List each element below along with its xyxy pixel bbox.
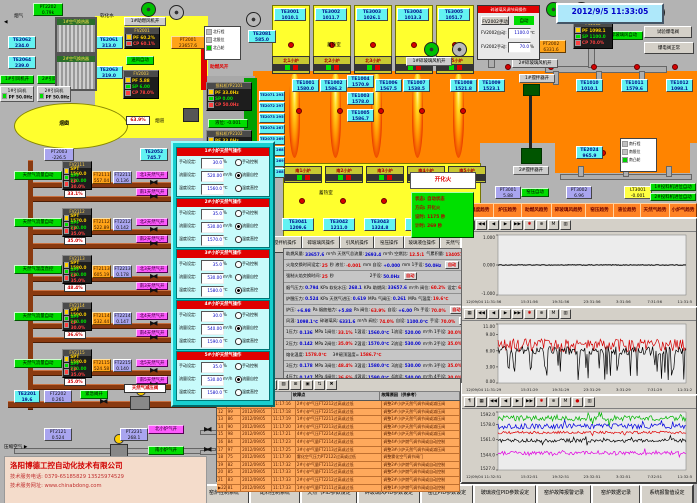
svg-text:15:31:29: 15:31:29 bbox=[521, 387, 539, 392]
thermo-dot bbox=[340, 198, 346, 204]
fv2002-manual-label: FV2002手动: bbox=[481, 44, 507, 50]
param-row: 熔化温度:1578.0℃ 3#碹顶温度=1586.7℃ bbox=[284, 350, 461, 361]
gas-valve-icon[interactable]: ▶◀ bbox=[150, 367, 155, 374]
instrument-TE1006: TE10061567.5 bbox=[375, 79, 402, 92]
mode-radio[interactable] bbox=[235, 172, 242, 179]
fan-icon bbox=[424, 42, 439, 57]
chart-toolbar-icon[interactable]: M bbox=[548, 220, 559, 230]
mode-radio[interactable] bbox=[235, 159, 242, 166]
mode-radio[interactable] bbox=[235, 312, 242, 319]
bubbler-dot bbox=[419, 108, 425, 114]
svg-text:3:31:29: 3:31:29 bbox=[616, 387, 631, 392]
setpoint-field[interactable]: 30.0 bbox=[201, 158, 224, 169]
fv2002-mode-indicator: 自动 bbox=[514, 16, 534, 25]
instrument-TE2063: TE2063319.0 bbox=[95, 66, 123, 79]
svg-text:15:32:51: 15:32:51 bbox=[521, 474, 539, 479]
field-label: 温度设定: bbox=[179, 287, 196, 293]
svg-text:0.000: 0.000 bbox=[483, 263, 495, 268]
chamber-temp-TE3002: TE30021011.7 bbox=[315, 8, 347, 21]
gas-mode-label: 天然气温度直控 bbox=[14, 265, 62, 274]
flow-transmitter: FT2112522.89 bbox=[92, 218, 111, 231]
setpoint-field[interactable]: 35.0 bbox=[201, 362, 224, 373]
gas-valve-icon[interactable]: ▶◀ bbox=[150, 179, 155, 186]
gas-valve-icon[interactable]: ▶◀ bbox=[150, 193, 155, 200]
mode-radio[interactable] bbox=[235, 185, 242, 192]
fan-icon bbox=[246, 12, 261, 27]
svg-text:7:31:56: 7:31:56 bbox=[647, 299, 662, 304]
svg-text:1527.0: 1527.0 bbox=[480, 466, 495, 471]
gas-valve-icon[interactable]: ▶◀ bbox=[150, 287, 155, 294]
chart-toolbar-icon[interactable]: ▦ bbox=[476, 397, 487, 407]
south-port-3: 南3小炉 bbox=[366, 166, 404, 183]
trend-chart-窑压趋势: ▦◀◀◀▶▶▶✱⊕M▥11.009.006.003.000.0012/09/04… bbox=[460, 306, 697, 397]
stirrer-motor-icon bbox=[523, 84, 540, 96]
instrument-PT2003: PT2003-226.5 bbox=[44, 148, 74, 161]
instrument-TE1009: TE10091523.1 bbox=[478, 79, 505, 92]
label-蓄热室: 蓄热室 bbox=[327, 42, 351, 48]
bubbler-dot bbox=[337, 108, 343, 114]
mode-radio[interactable] bbox=[235, 236, 242, 243]
chart-toolbar-icon[interactable]: ▶ bbox=[500, 220, 511, 230]
chamber-temp-TE3001: TE30011010.1 bbox=[274, 8, 306, 21]
label-爆电阀正常[interactable]: 爆电阀正常 bbox=[644, 42, 694, 54]
chart-toolbar-icon[interactable]: ◀◀ bbox=[488, 397, 499, 407]
unit-label: ℃ bbox=[223, 185, 228, 190]
mode-radio-label: 流量自控 bbox=[242, 172, 258, 178]
field-label: 流量设定: bbox=[179, 274, 196, 280]
trend-chart-窑温度趋势: ¶▦◀◀◀▶▶▶✱⊕M●▥1592.01578.01561.01544.0152… bbox=[460, 394, 697, 484]
chart-toolbar-icon[interactable]: ✱ bbox=[524, 220, 535, 230]
chart-toolbar-icon[interactable]: ▦ bbox=[464, 309, 475, 319]
chart-toolbar-icon[interactable]: ⊕ bbox=[536, 220, 547, 230]
chart-toolbar-icon[interactable]: ▶▶ bbox=[512, 220, 523, 230]
label-北小炉气开: 北小炉气开 bbox=[148, 425, 184, 434]
chart-toolbar-icon[interactable]: ✱ bbox=[524, 309, 535, 319]
gas-mode-label: 天然气流量自动 bbox=[14, 171, 62, 180]
instrument-TE1010: TE10101010.1 bbox=[576, 79, 603, 92]
chamber-temp-TE3043: TE30431324.8 bbox=[364, 218, 396, 231]
alarm-toolbar-icon[interactable]: ▣ bbox=[302, 380, 313, 390]
chamber-temp-TE3041: TE30411209.6 bbox=[282, 218, 314, 231]
mode-radio-label: 温度直控 bbox=[242, 287, 258, 293]
setpoint-field[interactable]: 1580.0 bbox=[201, 286, 224, 297]
thermo-dot bbox=[411, 42, 417, 48]
mode-radio[interactable] bbox=[235, 210, 242, 217]
unit-label: % bbox=[223, 261, 227, 266]
south-air-valve-icon[interactable]: ▶◀ bbox=[204, 446, 209, 453]
south-reversal-legend: 南行程南限位南凸轮 bbox=[620, 138, 657, 172]
instrument-TE2024: TE2024965.9 bbox=[576, 146, 603, 159]
instrument-PT2002: PT20026331.6 bbox=[536, 40, 566, 53]
param-row: 强制火焰交换时间:25秒 2手设:50.0Hz自动 bbox=[284, 271, 461, 282]
label-液位0001: 液位: -0.001 bbox=[208, 119, 248, 128]
setpoint-field[interactable]: 530.00 bbox=[201, 375, 224, 386]
instrument-TE1012: TE10121098.1 bbox=[666, 79, 693, 92]
bubbler-dot bbox=[460, 108, 466, 114]
bubbler-dot bbox=[505, 64, 511, 70]
label-窑压自动: 窑压自动 bbox=[521, 188, 549, 197]
panel-title: 1#小炉天然气操作 bbox=[177, 148, 269, 156]
mode-radio[interactable] bbox=[235, 338, 242, 345]
chart-toolbar-icon[interactable]: ✱ bbox=[536, 397, 547, 407]
vendor-phone: 技术服务电话: 0379-65185829 13525974529 bbox=[10, 473, 206, 480]
air-heat-exchanger: 1#空气换热器 bbox=[55, 17, 97, 54]
label-1#投料机进位自动: 1#投料机进位自动 bbox=[650, 183, 696, 191]
mode-radio[interactable] bbox=[235, 261, 242, 268]
bottom-button-窑炉故障报警记录[interactable]: 窑炉故障报警记录 bbox=[536, 484, 592, 503]
label-软化水: 软化水 bbox=[100, 13, 126, 19]
mode-radio[interactable] bbox=[235, 376, 242, 383]
label-送风自动: 送风自动 bbox=[126, 56, 154, 65]
svg-text:12/09/04 11:31:56: 12/09/04 11:31:56 bbox=[466, 299, 502, 304]
valve-position-value: 33.1% bbox=[64, 190, 86, 198]
burner-gas-panel-4: 4#小炉天然气操作手动设定:30.0%手动控制流量设定:540.00m³/h流量… bbox=[176, 300, 270, 350]
chart-plot: 1.0000.000-1.00012/09/04 11:31:5615:31:5… bbox=[462, 232, 692, 306]
gas-valve-controller-FV2115: FV2115SPT 1580.0SPF 530.00CP 35.0% bbox=[62, 349, 92, 378]
param-row: 2压力:0.142MPa 2阀位:35.0%2温设:1570.0℃2流设:530… bbox=[284, 339, 461, 350]
pressure-transmitter: FT22150.140 bbox=[113, 359, 132, 372]
chart-toolbar-icon[interactable]: ▶▶ bbox=[512, 309, 523, 319]
burner-gas-panel-1: 1#小炉天然气操作手动设定:30.0%手动控制流量设定:520.00m³/h流量… bbox=[176, 147, 270, 197]
alarm-row[interactable]: 16842012/09/0511:17:234#小炉气量FT2114过高或过低调… bbox=[217, 439, 460, 447]
gas-valve-icon[interactable]: ▶◀ bbox=[150, 334, 155, 341]
alarm-row[interactable]: 20852012/09/0511:17:335#小炉气量FT2115过高或过低调… bbox=[217, 469, 460, 477]
setpoint-field[interactable]: 540.00 bbox=[201, 324, 224, 335]
label-: ◀ bbox=[4, 20, 12, 25]
chart-toolbar-icon[interactable]: ▶ bbox=[500, 309, 511, 319]
instrument-TE2062: TE2062234.0 bbox=[8, 36, 36, 49]
label-试验爆电阀[interactable]: 试验爆电阀 bbox=[644, 26, 692, 38]
chart-toolbar-icon[interactable]: ▥ bbox=[560, 309, 571, 319]
setpoint-field[interactable]: 520.00 bbox=[201, 171, 224, 182]
instrument-TE1008: TE10081521.8 bbox=[450, 79, 477, 92]
fv2002-manual-button[interactable]: FV2002手动 bbox=[481, 16, 509, 25]
chart-toolbar-icon[interactable]: ▥ bbox=[584, 397, 595, 407]
chart-toolbar-icon[interactable]: ▶ bbox=[512, 397, 523, 407]
label-助燃风开: 助燃风开 bbox=[210, 64, 236, 70]
fv2002-auto-unit: ℃ bbox=[530, 30, 535, 35]
instrument-FT2202: FT22020.261 bbox=[44, 390, 72, 403]
crushed-glass-fan-valve-dialog: 碎玻璃风调节阀操作 FV2002手动 自动 FV2002自动: 1100.0 ℃… bbox=[477, 5, 540, 60]
label-天然气减压阀: 天然气减压阀 bbox=[124, 384, 166, 393]
vendor-web: 技术服务网址: www.chinabdong.com bbox=[10, 482, 206, 489]
south-port-2: 南2小炉 bbox=[325, 166, 363, 183]
flow-transmitter: FT2111557.04 bbox=[92, 171, 111, 184]
setpoint-field[interactable]: 1570.0 bbox=[201, 235, 224, 246]
stack-damper-position: 63.9% bbox=[126, 116, 150, 125]
chart-toolbar-icon[interactable]: ¶ bbox=[464, 397, 475, 407]
svg-text:15:31:56: 15:31:56 bbox=[521, 299, 539, 304]
label-蓄热室: 蓄热室 bbox=[319, 190, 343, 196]
svg-text:12/09/04 11:32:51: 12/09/04 11:32:51 bbox=[466, 474, 502, 479]
chart-plot: 11.009.006.003.000.0012/09/04 11:31:2915… bbox=[462, 321, 692, 394]
param-row: 烟气压力:0.794KPa 软化水压:268.1KPa 助燃风:33657.6m… bbox=[284, 283, 461, 294]
alarm-toolbar-icon[interactable]: ▧ bbox=[278, 380, 289, 390]
mode-radio[interactable] bbox=[235, 325, 242, 332]
panel-title: 3#小炉天然气操作 bbox=[177, 250, 269, 258]
gas-mode-label: 天然气流量自动 bbox=[14, 359, 62, 368]
mode-radio-label: 温度直控 bbox=[242, 389, 258, 395]
chamber-temp-TE3042: TE30421211.0 bbox=[323, 218, 355, 231]
svg-text:11:31:56: 11:31:56 bbox=[677, 299, 692, 304]
instrument-PT2231: PT2231268.1 bbox=[120, 428, 148, 441]
instrument-TE2201: TE220119.6 bbox=[14, 390, 40, 403]
setpoint-field[interactable]: 35.0 bbox=[201, 260, 224, 271]
chart-toolbar-icon[interactable]: ▥ bbox=[560, 220, 571, 230]
alarm-row[interactable]: 13862012/09/0511:17:191#小炉气压FT2211过高或过低调… bbox=[217, 416, 460, 424]
panel-title: 2#小炉天然气操作 bbox=[177, 199, 269, 207]
chart-toolbar-icon[interactable]: ⊕ bbox=[536, 309, 547, 319]
svg-text:23:31:29: 23:31:29 bbox=[583, 387, 601, 392]
id-fan-unit: 2#引风机PF 50.0Hz bbox=[37, 86, 71, 102]
fan-icon bbox=[141, 2, 156, 17]
label-2#投料机进位自动: 2#投料机进位自动 bbox=[650, 193, 696, 201]
instrument-TE1002: TE10021586.2 bbox=[320, 79, 347, 92]
svg-text:1592.0: 1592.0 bbox=[480, 412, 495, 417]
svg-text:3:32:51: 3:32:51 bbox=[616, 474, 631, 479]
bubbler-dot bbox=[672, 64, 678, 70]
valve-position-value: 35.0% bbox=[64, 378, 86, 386]
burner-gas-panel-3: 3#小炉天然气操作手动设定:35.0%手动控制流量设定:530.00m³/h流量… bbox=[176, 249, 270, 299]
field-label: 温度设定: bbox=[179, 185, 196, 191]
field-label: 温度设定: bbox=[179, 338, 196, 344]
alarm-row[interactable]: 12992012/09/0511:17:185#小炉气压FT2215过高或过低调… bbox=[217, 409, 460, 417]
chart-toolbar-icon[interactable]: ◀ bbox=[500, 397, 511, 407]
instrument-PT3001: PT30015.88 bbox=[495, 186, 521, 199]
label-2#碎玻璃风机开: 2#碎玻璃风机开 bbox=[512, 59, 558, 68]
id-fan-unit: 1#引风机PF 50.0Hz bbox=[0, 86, 34, 102]
svg-text:19:31:29: 19:31:29 bbox=[552, 387, 570, 392]
instrument-TE1007: TE10071538.5 bbox=[403, 79, 430, 92]
gas-valve-icon[interactable]: ▶◀ bbox=[150, 240, 155, 247]
alarm-toolbar-icon[interactable]: ✖ bbox=[326, 380, 337, 390]
chamber-temp-TE3004: TE30041013.3 bbox=[397, 8, 429, 21]
alarm-row[interactable]: 19822012/09/0511:17:322#小炉气量FT2112过高或过低调… bbox=[217, 462, 460, 470]
controller-FV2001: FV2001PF 60.2%CP 60.1% bbox=[124, 27, 160, 49]
label-1#碎玻璃风机开: 1#碎玻璃风机开 bbox=[406, 57, 452, 66]
svg-text:7:31:29: 7:31:29 bbox=[647, 387, 662, 392]
burner-gas-panel-2: 2#小炉天然气操作手动设定:35.0%手动控制流量设定:530.00m³/h流量… bbox=[176, 198, 270, 248]
mode-radio-label: 手动控制 bbox=[242, 210, 258, 216]
mode-radio-label: 温度直控 bbox=[242, 338, 258, 344]
svg-text:1578.0: 1578.0 bbox=[480, 422, 495, 427]
north-air-valve-icon[interactable]: ▶◀ bbox=[204, 426, 209, 433]
mode-radio-label: 流量自控 bbox=[242, 274, 258, 280]
param-row: 助燃风量:33657.6m³/h 天然气总流量:2693.4m³/h 空燃比:1… bbox=[284, 249, 461, 260]
label-南小炉气开: 南小炉气开 bbox=[148, 446, 184, 455]
chart-toolbar-icon[interactable]: ▶▶ bbox=[524, 397, 535, 407]
field-label: 手动设定: bbox=[179, 312, 196, 318]
mode-radio[interactable] bbox=[235, 363, 242, 370]
north-port-2: 北2小炉 bbox=[313, 56, 351, 74]
gas-valve-icon[interactable]: ▶◀ bbox=[150, 320, 155, 327]
fv2002-auto-setpoint-field[interactable]: 1100.0 bbox=[508, 28, 531, 39]
svg-text:11.00: 11.00 bbox=[483, 324, 495, 329]
instrument-TE1001: TE10011580.0 bbox=[292, 79, 319, 92]
chart-toolbar-icon[interactable]: M bbox=[560, 397, 571, 407]
instrument-TE1003: TE10031578.0 bbox=[347, 92, 374, 105]
param-row: 3压力:0.178MPa 3阀位:48.4%3温设:1580.0℃3流设:530… bbox=[284, 361, 461, 372]
alarm-row[interactable]: 17972012/09/0511:17:253#小炉气量FT2113过高或过低调… bbox=[217, 447, 460, 455]
flow-transmitter: FT2114532.44 bbox=[92, 312, 111, 325]
north-port-3: 北3小炉 bbox=[354, 56, 392, 74]
chart-toolbar-icon[interactable]: ◀ bbox=[488, 309, 499, 319]
svg-text:0.00: 0.00 bbox=[486, 379, 496, 384]
unit-label: ℃ bbox=[223, 236, 228, 241]
svg-text:3.00: 3.00 bbox=[486, 364, 496, 369]
mode-radio[interactable] bbox=[235, 389, 242, 396]
field-label: 手动设定: bbox=[179, 261, 196, 267]
setpoint-field[interactable]: 30.0 bbox=[201, 311, 224, 322]
instrument-TE2052: TE2052745.7 bbox=[140, 148, 168, 161]
trend-chart-液位趋势: ▦◀◀◀▶▶▶✱⊕M▥1.0000.000-1.00012/09/04 11:3… bbox=[460, 217, 697, 309]
process-parameter-block: 助燃风量:33657.6m³/h 天然气总流量:2693.4m³/h 空燃比:1… bbox=[283, 248, 462, 383]
label-紧急阀开: 紧急阀开 bbox=[80, 390, 108, 399]
instrument-TE2064: TE2064239.0 bbox=[8, 56, 36, 69]
gas-valve-icon[interactable]: ▶◀ bbox=[150, 273, 155, 280]
pressure-transmitter: FT22120.142 bbox=[113, 218, 132, 231]
pressure-transmitter: FT22110.136 bbox=[113, 171, 132, 184]
controller-FV2002: FV2002PF 1098.1SP 1100.0CP 70.0% bbox=[573, 20, 613, 49]
svg-text:11:32:51: 11:32:51 bbox=[677, 474, 692, 479]
svg-text:19:31:56: 19:31:56 bbox=[552, 299, 570, 304]
field-label: 流量设定: bbox=[179, 376, 196, 382]
alarm-toolbar-icon[interactable]: ⊞ bbox=[290, 380, 301, 390]
mode-radio-label: 流量自控 bbox=[242, 376, 258, 382]
burner-gas-panel-5: 5#小炉天然气操作手动设定:35.0%手动控制流量设定:530.00m³/h流量… bbox=[176, 351, 270, 401]
setpoint-field[interactable]: 1580.0 bbox=[201, 388, 224, 399]
mode-radio[interactable] bbox=[235, 223, 242, 230]
svg-text:3:31:56: 3:31:56 bbox=[616, 299, 631, 304]
gas-valve-controller-FV2113: FV2113SPT 1580.0SPF 530.00CP 35.0% bbox=[62, 255, 92, 284]
bubbler-dot bbox=[591, 64, 597, 70]
chart-toolbar-icon[interactable]: ● bbox=[572, 397, 583, 407]
chart-toolbar-icon[interactable]: ◀ bbox=[488, 220, 499, 230]
instrument-TE2081: TE2081585.0 bbox=[248, 30, 276, 43]
setpoint-field[interactable]: 35.0 bbox=[201, 209, 224, 220]
chimney: 烟囱 bbox=[14, 103, 128, 149]
label-1#搅拌器开: 1#搅拌器开 bbox=[519, 74, 555, 83]
mode-radio-label: 手动控制 bbox=[242, 159, 258, 165]
air-pipe bbox=[578, 166, 584, 177]
north-port-1: 北1小炉 bbox=[272, 56, 310, 74]
unit-label: % bbox=[223, 312, 227, 317]
unit-label: m³/h bbox=[223, 172, 232, 177]
instrument-TE1011: TE10111579.6 bbox=[621, 79, 648, 92]
instrument-PT2121: PT21210.524 bbox=[44, 428, 72, 441]
alarm-row[interactable]: 18752012/09/0511:17:30雾化空气压力PT2122过高或过低调… bbox=[217, 454, 460, 462]
label-2#搅拌器开: 2#搅拌器开 bbox=[513, 166, 549, 175]
bottom-button-窑炉数据记录[interactable]: 窑炉数据记录 bbox=[591, 484, 641, 503]
valve-position-value: 35.0% bbox=[64, 237, 86, 245]
chart-toolbar-icon[interactable]: ◀◀ bbox=[476, 220, 487, 230]
svg-text:23:31:56: 23:31:56 bbox=[583, 299, 601, 304]
chart-toolbar-icon[interactable]: M bbox=[548, 309, 559, 319]
label-烟气: 烟气 bbox=[14, 13, 34, 19]
bottom-button-玻璃液位PID参数设定[interactable]: 玻璃液位PID参数设定 bbox=[473, 484, 537, 503]
instrument-TE2061: TE2061313.0 bbox=[95, 36, 123, 49]
svg-text:-1.000: -1.000 bbox=[482, 291, 496, 296]
unit-label: m³/h bbox=[223, 325, 232, 330]
damper-motor-icon bbox=[183, 108, 199, 122]
svg-text:11:31:29: 11:31:29 bbox=[677, 387, 692, 392]
alarm-toolbar-icon[interactable]: ⇅ bbox=[314, 380, 325, 390]
gas-mode-label: 天然气流量自动 bbox=[14, 312, 62, 321]
chart-toolbar-icon[interactable]: ⊕ bbox=[548, 397, 559, 407]
svg-text:12/09/04 11:31:29: 12/09/04 11:31:29 bbox=[466, 387, 502, 392]
setpoint-field[interactable]: 1560.0 bbox=[201, 184, 224, 195]
fv2002-manual-setpoint-field[interactable]: 70.0 bbox=[508, 42, 531, 53]
thermo-dot bbox=[288, 42, 294, 48]
thermo-dot bbox=[299, 198, 305, 204]
param-row: 炉膛压力:0.524KPa 天然气进压:0.619MPa 气阀压:0.261MP… bbox=[284, 294, 461, 305]
flow-transmitter: FT2113605.19 bbox=[92, 265, 111, 278]
alarm-row[interactable]: 15982012/09/0511:17:214#小炉气压FT2214过高或过低调… bbox=[217, 431, 460, 439]
vendor-info-box: 洛阳博德工控自动化技术有限公司 技术服务电话: 0379-65185829 13… bbox=[4, 456, 207, 503]
mode-radio-label: 手动控制 bbox=[242, 261, 258, 267]
instrument-TE2071: TE2071 293.0 bbox=[259, 91, 285, 101]
north-reversal-legend: 北行程北限位北凸轮 bbox=[204, 26, 241, 60]
alarm-row[interactable]: 14902012/09/0511:17:203#小炉气压FT2213过高或过低调… bbox=[217, 424, 460, 432]
svg-text:19:32:51: 19:32:51 bbox=[552, 474, 570, 479]
unit-label: ℃ bbox=[223, 389, 228, 394]
bubbler-dot bbox=[378, 108, 384, 114]
alarm-row[interactable]: 21832012/09/0511:17:332#小炉气压FT2212过高或过低调… bbox=[217, 477, 460, 485]
pressure-transmitter: FT22140.147 bbox=[113, 312, 132, 325]
controller-投料机YP2101: 投料机YP2101PF 33.0HzSP 0.00CP 50.0Hz bbox=[206, 82, 252, 111]
bubbler-dot bbox=[634, 64, 640, 70]
gas-flow-meter bbox=[130, 396, 150, 410]
mode-radio[interactable] bbox=[235, 287, 242, 294]
mode-radio-label: 手动控制 bbox=[242, 363, 258, 369]
valve-position-value: 48.4% bbox=[64, 284, 86, 292]
mode-radio[interactable] bbox=[235, 274, 242, 281]
flow-transmitter: FT2115524.58 bbox=[92, 359, 111, 372]
south-port-1: 南1小炉 bbox=[284, 166, 322, 183]
unit-label: % bbox=[223, 363, 227, 368]
unit-label: % bbox=[223, 210, 227, 215]
setpoint-field[interactable]: 530.00 bbox=[201, 222, 224, 233]
chart-toolbar-icon[interactable]: ◀◀ bbox=[476, 309, 487, 319]
unit-label: m³/h bbox=[223, 274, 232, 279]
instrument-PT2202: PT22020.79k bbox=[33, 3, 63, 16]
dialog-title: 碎玻璃风调节阀操作 bbox=[478, 6, 539, 13]
instrument-PT3002: PT30026.96 bbox=[566, 186, 592, 199]
instrument-TE1004: TE10041570.9 bbox=[347, 75, 374, 88]
gas-valve-controller-FV2111: FV2111SPT 1560.0SPF 520.00CP 30.0% bbox=[62, 161, 92, 190]
param-row: 风温:1098.1℃碎玻璃风:6331.6m³/h 阀位:74.0%自设:110… bbox=[284, 316, 461, 327]
field-label: 流量设定: bbox=[179, 325, 196, 331]
param-row: 火焰交换时间设定:25秒 液位:-0.001mm 自设:+0.000mm 1手设… bbox=[284, 260, 461, 271]
air-pipe bbox=[666, 166, 672, 177]
field-label: 温度设定: bbox=[179, 236, 196, 242]
setpoint-field[interactable]: 530.00 bbox=[201, 273, 224, 284]
bottom-button-系统报警值设定[interactable]: 系统报警值设定 bbox=[640, 484, 694, 503]
bubbler-dot bbox=[296, 108, 302, 114]
gas-valve-icon[interactable]: ▶◀ bbox=[150, 226, 155, 233]
label-烟道: 烟道 bbox=[155, 118, 171, 124]
mode-radio-label: 流量自控 bbox=[242, 325, 258, 331]
setpoint-field[interactable]: 1590.0 bbox=[201, 337, 224, 348]
svg-text:1544.0: 1544.0 bbox=[480, 452, 495, 457]
svg-text:7:32:51: 7:32:51 bbox=[647, 474, 662, 479]
chart-plot: 1592.01578.01561.01544.01527.012/09/04 1… bbox=[462, 409, 692, 481]
unit-label: ℃ bbox=[223, 287, 228, 292]
vendor-name: 洛阳博德工控自动化技术有限公司 bbox=[10, 460, 206, 471]
datetime-display: 2012/9/5 11:33:05 bbox=[556, 3, 664, 24]
mode-radio-label: 流量自控 bbox=[242, 223, 258, 229]
alarm-row[interactable]: ▶22812012/09/0511:17:331#小炉气量FT2111过高或过低… bbox=[217, 485, 460, 493]
